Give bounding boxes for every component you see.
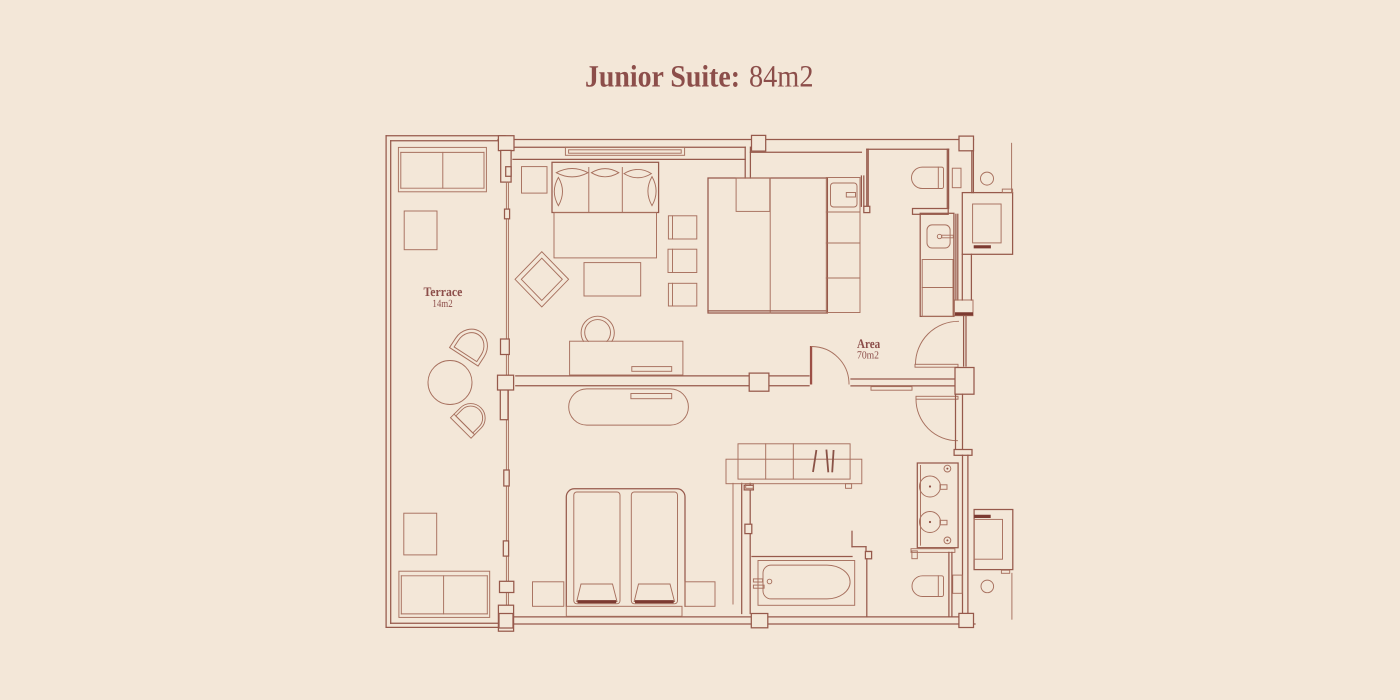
- svg-text:Junior Suite:: Junior Suite:: [585, 59, 740, 94]
- svg-text:84m2: 84m2: [749, 59, 814, 94]
- svg-text:Terrace: Terrace: [424, 284, 463, 299]
- svg-text:14m2: 14m2: [432, 298, 452, 310]
- svg-text:70m2: 70m2: [857, 350, 879, 362]
